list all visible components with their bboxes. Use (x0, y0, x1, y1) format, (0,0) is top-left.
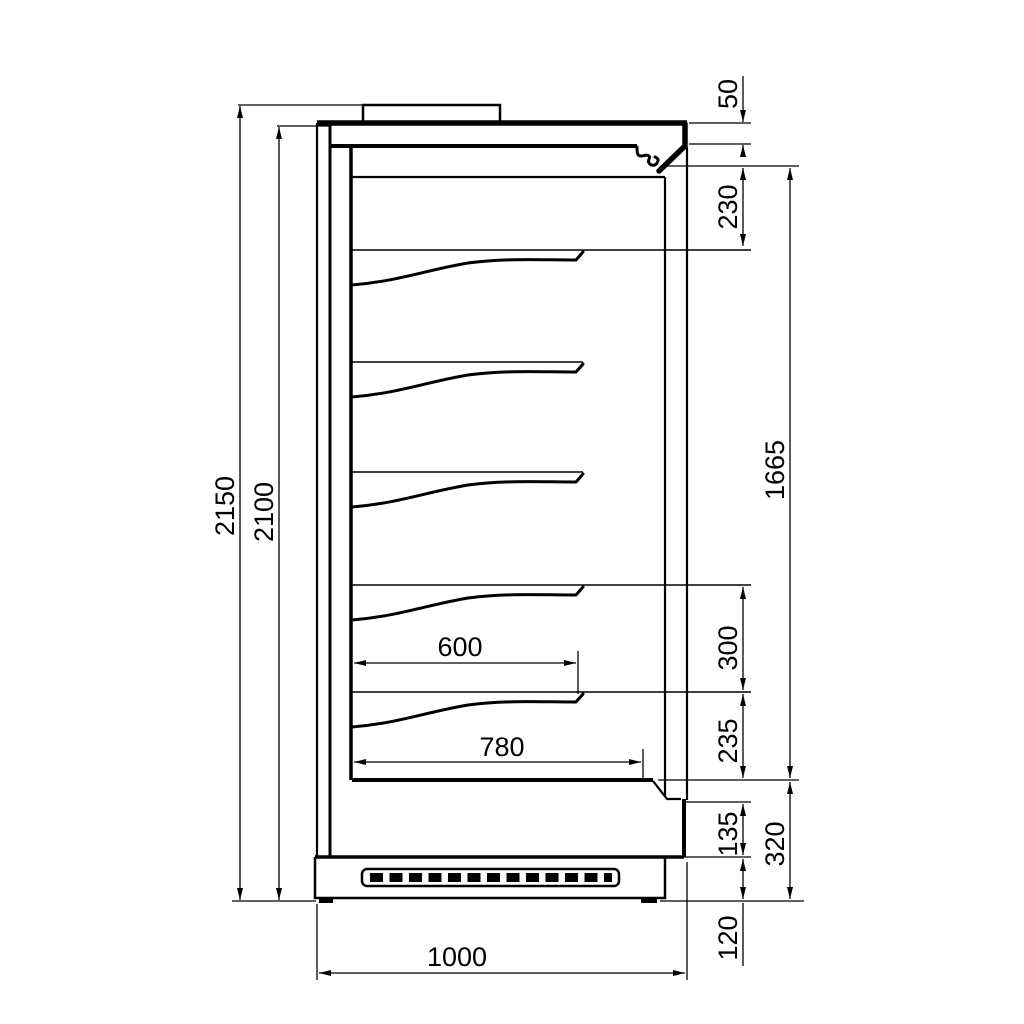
shelf-1-bracket (352, 252, 583, 285)
dim-body-height: 2100 (249, 127, 279, 900)
dim-front-sill-label: 135 (713, 811, 743, 856)
shelf-5 (352, 692, 751, 727)
dim-deck-depth: 780 (354, 732, 641, 762)
dim-plinth-height: 120 (713, 859, 743, 966)
shelf-4 (352, 585, 751, 620)
dim-top-clearance-label: 230 (713, 184, 743, 229)
front-sill-step (653, 781, 681, 799)
dim-bottom-clearance: 235 (713, 694, 743, 778)
dim-interior-opening: 1665 (760, 168, 790, 778)
dim-front-base: 320 (760, 782, 790, 899)
foot-right (641, 897, 657, 903)
dim-overall-depth-label: 1000 (427, 942, 487, 972)
shelf-4-bracket (352, 587, 583, 620)
shelf-3 (352, 472, 583, 507)
shelf-5-bracket (352, 694, 583, 727)
dim-deck-depth-label: 780 (479, 732, 524, 762)
dim-canopy-front-label: 50 (713, 79, 743, 109)
dim-interior-opening-label: 1665 (760, 440, 790, 500)
dim-front-sill: 135 (713, 804, 743, 857)
dim-plinth-height-label: 120 (713, 915, 743, 960)
cabinet-body (315, 105, 751, 903)
dim-shelf-depth: 600 (354, 632, 576, 663)
dim-front-base-label: 320 (760, 821, 790, 866)
dim-shelf-pitch: 300 (713, 587, 743, 690)
dim-shelf-pitch-label: 300 (713, 625, 743, 670)
canopy-right-corner (659, 124, 685, 171)
drawing-canvas: 2150 2100 50 230 1665 300 235 13 (0, 0, 1024, 1024)
shelf-2-bracket (352, 364, 583, 397)
foot-left (319, 897, 333, 903)
dim-overall-depth: 1000 (319, 942, 685, 973)
dim-top-clearance: 230 (713, 168, 743, 246)
dim-overall-height: 2150 (210, 106, 240, 900)
multideck-section-drawing: 2150 2100 50 230 1665 300 235 13 (0, 0, 1024, 1024)
shelf-3-bracket (352, 474, 583, 507)
dim-bottom-clearance-label: 235 (713, 718, 743, 763)
shelf-1 (352, 250, 751, 285)
shelf-2 (352, 362, 583, 397)
dim-body-height-label: 2100 (249, 482, 279, 542)
dimension-annotations: 2150 2100 50 230 1665 300 235 13 (210, 76, 790, 973)
dim-overall-height-label: 2150 (210, 476, 240, 536)
canopy-drip-edge (637, 147, 658, 165)
dim-shelf-depth-label: 600 (437, 632, 482, 662)
